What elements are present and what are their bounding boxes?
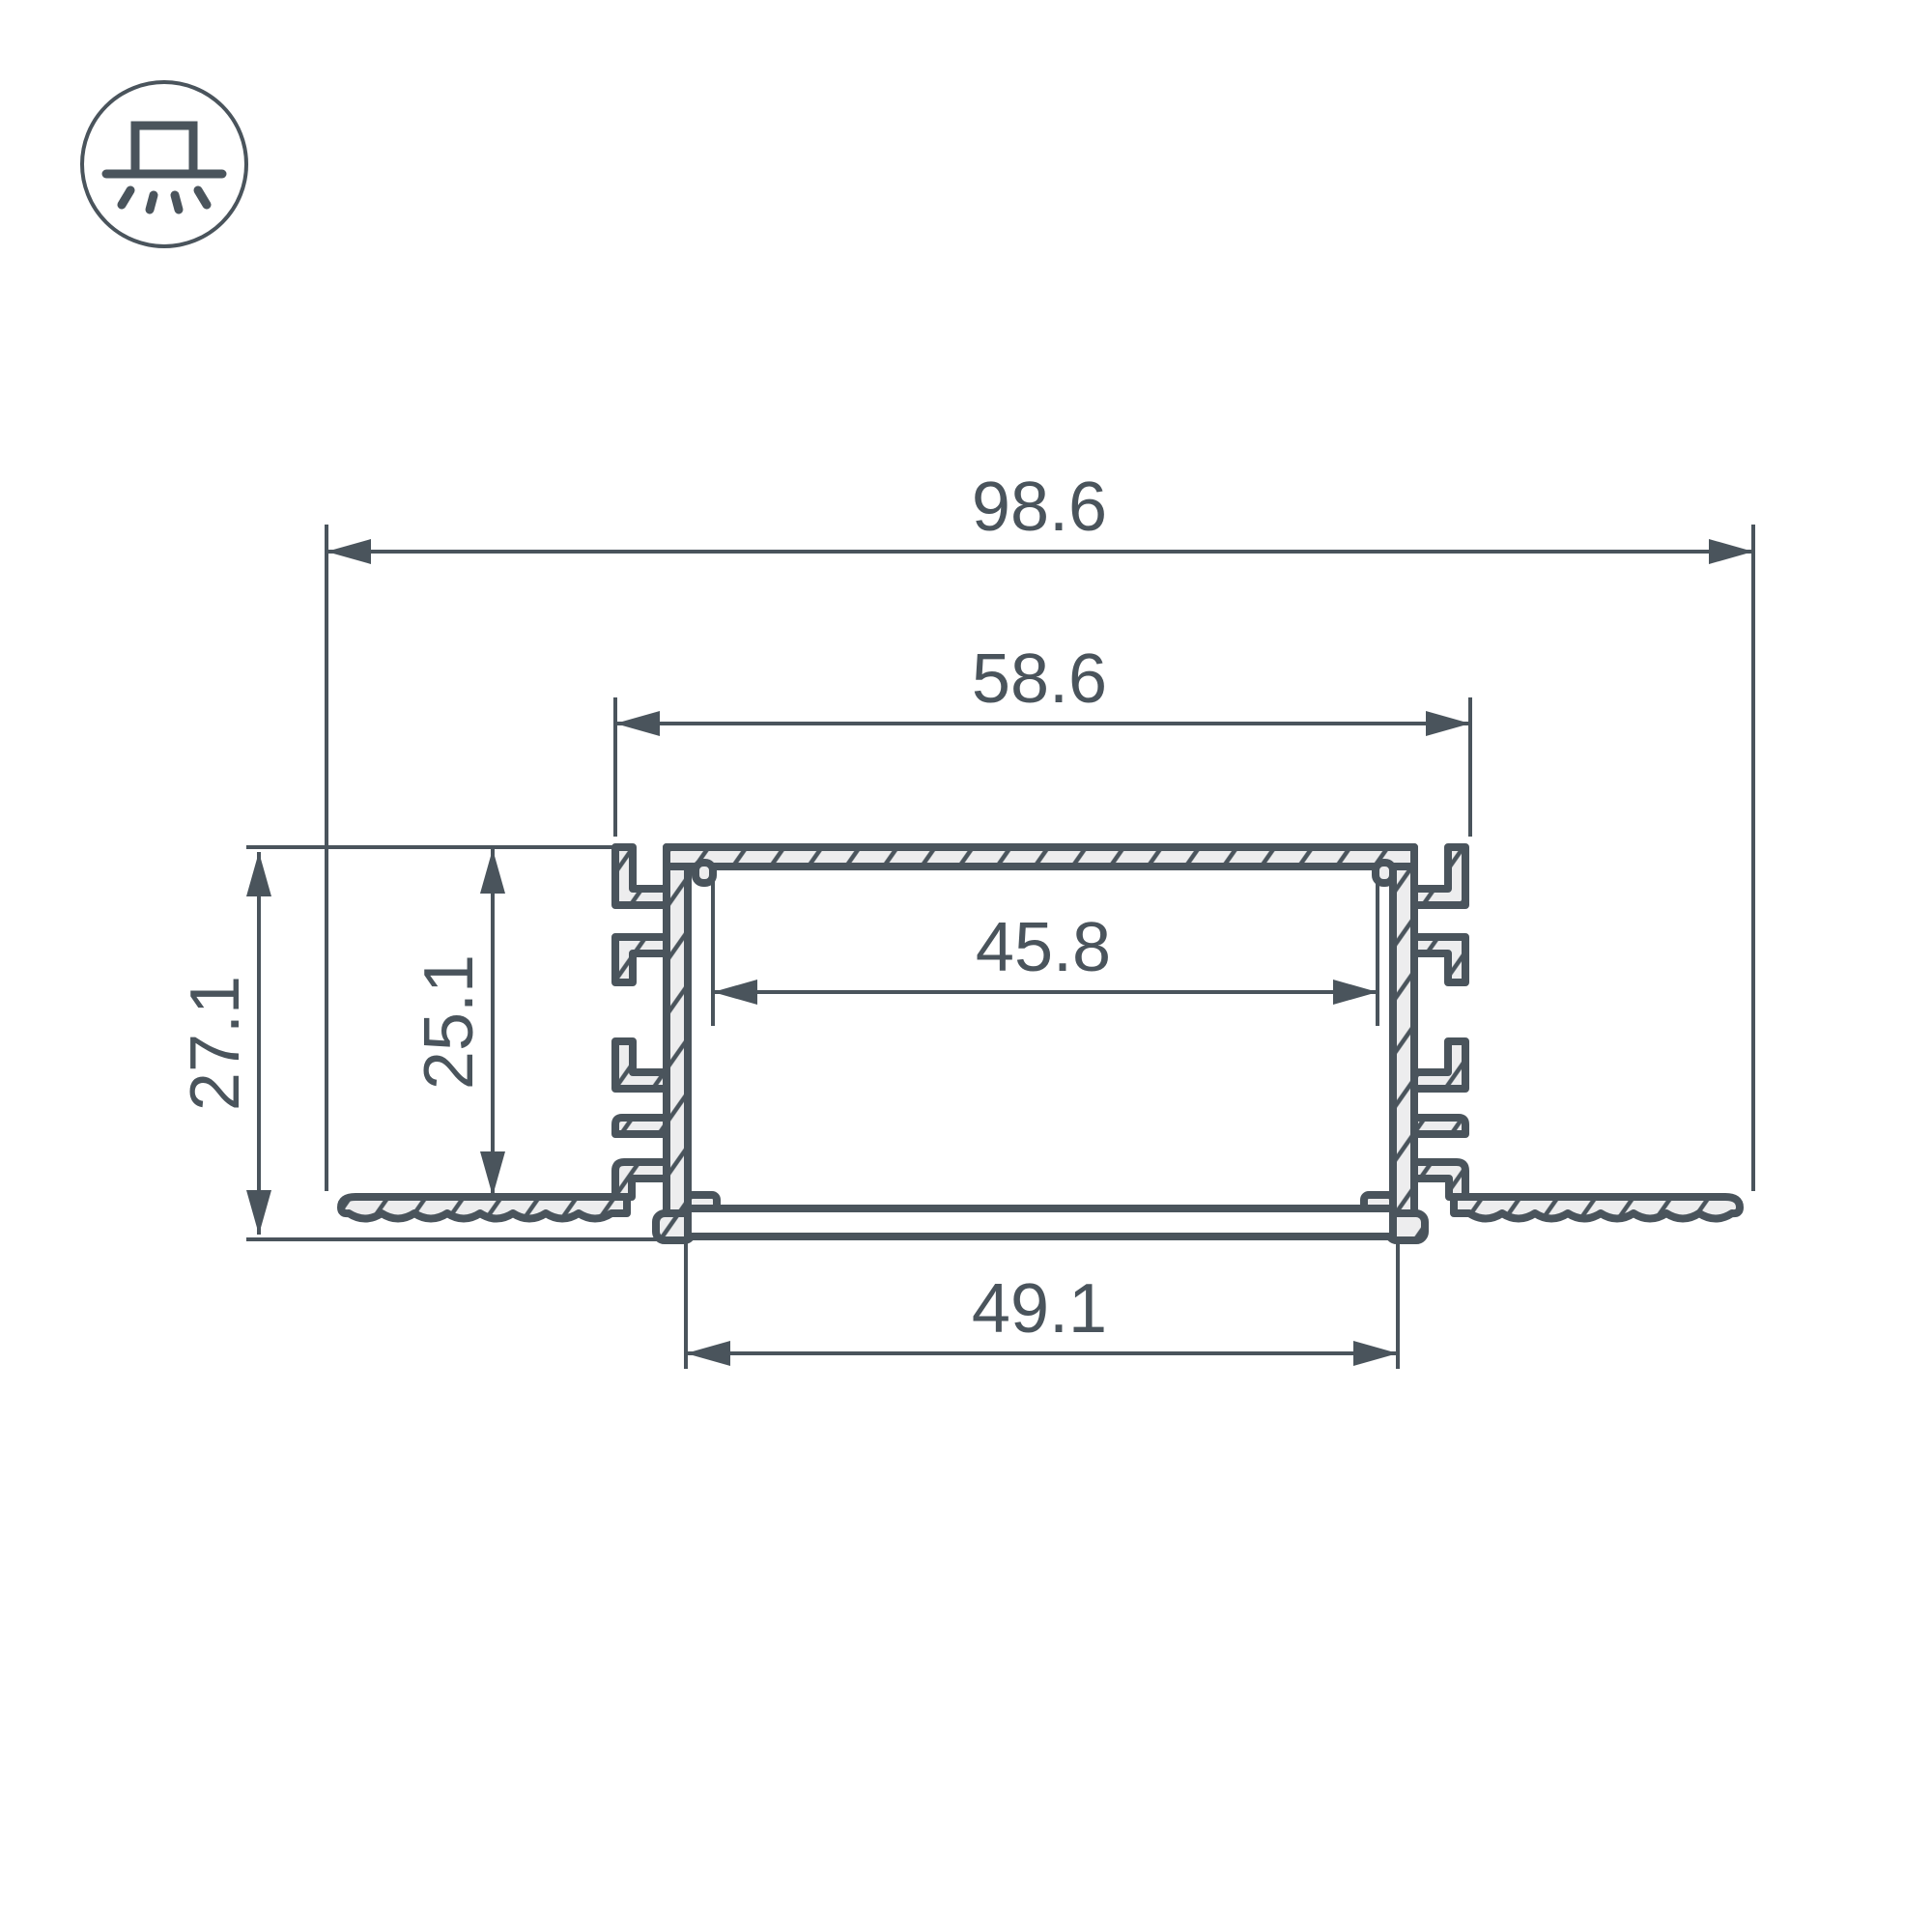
profile-top-plate [667, 847, 1414, 867]
dim-cover-width-label: 49.1 [972, 1270, 1107, 1348]
dim-overall-width: 98.6 [327, 469, 1753, 1191]
arrowhead-left [615, 711, 660, 736]
cover-plate [688, 1208, 1393, 1236]
wing-bracket-right [1414, 1162, 1465, 1197]
arrowhead-right [1333, 980, 1378, 1005]
drawing-svg: 98.6 58.6 45.8 49.1 [0, 0, 1932, 1932]
dim-inner-width: 45.8 [713, 881, 1378, 1026]
tooth-left-2 [615, 937, 667, 982]
drawing-canvas: 98.6 58.6 45.8 49.1 [0, 0, 1932, 1932]
mount-type-icon [82, 82, 246, 246]
tooth-right-3 [1414, 1041, 1465, 1089]
dim-overall-width-label: 98.6 [972, 469, 1107, 546]
arrowhead-left [686, 1341, 730, 1366]
arrowhead-left [327, 539, 371, 564]
dim-inner-height: 25.1 [411, 849, 505, 1196]
icon-light-rays [122, 190, 207, 210]
icon-circle [82, 82, 246, 246]
wing-bracket-left [615, 1162, 667, 1197]
dim-mount-width: 58.6 [615, 640, 1470, 837]
tooth-right-2 [1414, 937, 1465, 982]
arrowhead-bottom [480, 1151, 505, 1196]
dim-inner-width-label: 45.8 [976, 909, 1111, 986]
wing-left [341, 1197, 627, 1219]
wing-right [1454, 1197, 1740, 1219]
dim-cover-width: 49.1 [686, 1242, 1398, 1369]
dim-inner-height-label: 25.1 [411, 954, 488, 1090]
arrowhead-bottom [246, 1190, 271, 1235]
inner-hook-right [1376, 863, 1393, 883]
icon-fixture-box [135, 126, 193, 174]
arrowhead-left [713, 980, 757, 1005]
tooth-right-1 [1414, 847, 1465, 905]
dim-mount-width-label: 58.6 [972, 640, 1107, 718]
arrowhead-right [1709, 539, 1753, 564]
tooth-left-1 [615, 847, 667, 905]
arrowhead-top [480, 849, 505, 894]
dim-overall-height-label: 27.1 [177, 976, 254, 1111]
arrowhead-right [1353, 1341, 1398, 1366]
arrowhead-right [1426, 711, 1470, 736]
profile-cross-section [341, 847, 1740, 1240]
tooth-right-4 [1414, 1118, 1465, 1134]
tooth-left-3 [615, 1041, 667, 1089]
inner-hook-left [696, 863, 713, 883]
arrowhead-top [246, 852, 271, 896]
tooth-left-4 [615, 1118, 667, 1134]
